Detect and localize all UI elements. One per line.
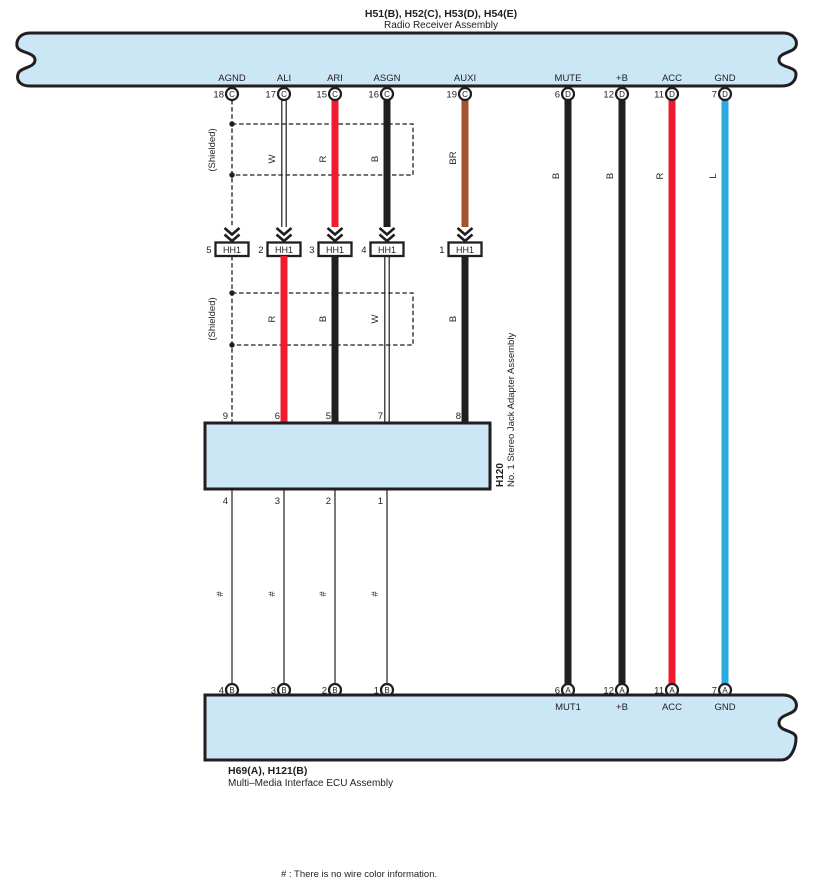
pin-number: 16 bbox=[368, 90, 379, 101]
adapter-pin-number: 6 bbox=[275, 411, 280, 422]
top-signal-agnd: AGND bbox=[218, 73, 246, 84]
hh1-connector-label: HH1 bbox=[275, 245, 293, 255]
connector-letter: C bbox=[332, 90, 338, 99]
pin-number: 18 bbox=[213, 90, 224, 101]
top-signal-mute: MUTE bbox=[555, 73, 582, 84]
top-signal-gnd: GND bbox=[714, 73, 735, 84]
wire-color-label-r: R bbox=[655, 172, 666, 179]
stereo-jack-adapter-box bbox=[205, 423, 490, 489]
mmi-ecu-band bbox=[205, 695, 796, 760]
no-color-hash: # bbox=[267, 591, 278, 597]
hh1-pin-number: 1 bbox=[439, 245, 444, 256]
hh1-connector-label: HH1 bbox=[223, 245, 241, 255]
top-signal-ari: ARI bbox=[327, 73, 343, 84]
top-pin-connectors: C 18 C 17 C 15 C 16 C 19 D 6 D 12 D 11 D… bbox=[213, 88, 731, 101]
wire-color-label-b: B bbox=[551, 173, 562, 179]
bottom-signal-mut1: MUT1 bbox=[555, 702, 581, 713]
bottom-component-codes: H69(A), H121(B) bbox=[228, 765, 307, 777]
adapter-pin-number: 3 bbox=[275, 496, 280, 507]
pin-number: 15 bbox=[316, 90, 327, 101]
top-component-codes: H51(B), H52(C), H53(D), H54(E) bbox=[365, 8, 517, 20]
wire-color-label-b: B bbox=[318, 316, 329, 322]
splice-arrow bbox=[225, 228, 473, 241]
pin-number: 7 bbox=[712, 90, 717, 101]
hh1-connector-label: HH1 bbox=[456, 245, 474, 255]
adapter-pin-number: 4 bbox=[223, 496, 228, 507]
no-color-hash: # bbox=[370, 591, 381, 597]
no-color-hash: # bbox=[318, 591, 329, 597]
hh1-pin-number: 3 bbox=[309, 245, 314, 256]
bottom-component-name: Multi–Media Interface ECU Assembly bbox=[228, 778, 393, 789]
top-signal-ali: ALI bbox=[277, 73, 291, 84]
adapter-pin-number: 5 bbox=[326, 411, 331, 422]
adapter-pin-number: 8 bbox=[456, 411, 461, 422]
pin-number: 12 bbox=[603, 90, 614, 101]
adapter-name: No. 1 Stereo Jack Adapter Assembly bbox=[506, 333, 517, 487]
hh1-connector-label: HH1 bbox=[326, 245, 344, 255]
connector-letter: C bbox=[229, 90, 235, 99]
pin-number: 19 bbox=[446, 90, 457, 101]
connector-letter: C bbox=[281, 90, 287, 99]
wire-color-label-l: L bbox=[708, 173, 719, 178]
top-component-name: Radio Receiver Assembly bbox=[384, 20, 498, 31]
adapter-pin-number: 2 bbox=[326, 496, 331, 507]
top-signal-auxi: AUXI bbox=[454, 73, 476, 84]
adapter-pin-number: 1 bbox=[378, 496, 383, 507]
bottom-signal-gnd: GND bbox=[714, 702, 735, 713]
hh1-pin-number: 2 bbox=[258, 245, 263, 256]
wire-color-label-br: BR bbox=[448, 151, 459, 164]
wire-color-label-b: B bbox=[370, 156, 381, 162]
wiring-diagram-page: H51(B), H52(C), H53(D), H54(E) Radio Rec… bbox=[0, 0, 813, 891]
wire-color-label-w: W bbox=[370, 314, 381, 323]
connector-letter: C bbox=[462, 90, 468, 99]
connector-letter: D bbox=[565, 90, 571, 99]
pin-number: 6 bbox=[555, 90, 560, 101]
adapter-pin-number: 7 bbox=[378, 411, 383, 422]
hh1-pin-number: 4 bbox=[361, 245, 366, 256]
wire-color-label-b: B bbox=[605, 173, 616, 179]
adapter-pin-number: 9 bbox=[223, 411, 228, 422]
top-signal-acc: ACC bbox=[662, 73, 682, 84]
connector-letter: D bbox=[669, 90, 675, 99]
connector-letter: D bbox=[722, 90, 728, 99]
hh1-connector-label: HH1 bbox=[378, 245, 396, 255]
top-signal-asgn: ASGN bbox=[374, 73, 401, 84]
hh1-pin-number: 5 bbox=[206, 245, 211, 256]
no-color-hash: # bbox=[215, 591, 226, 597]
wire-color-label-r: R bbox=[267, 315, 278, 322]
shield-label-lower: (Shielded) bbox=[207, 297, 218, 340]
wire-color-label-b: B bbox=[448, 316, 459, 322]
connector-letter: C bbox=[384, 90, 390, 99]
no-color-note: # : There is no wire color information. bbox=[281, 869, 437, 880]
adapter-code: H120 bbox=[495, 463, 506, 487]
wire-color-label-r: R bbox=[318, 155, 329, 162]
connector-letter: D bbox=[619, 90, 625, 99]
top-signal-plusb: +B bbox=[616, 73, 628, 84]
bottom-signal-acc: ACC bbox=[662, 702, 682, 713]
bottom-signal-plusb: +B bbox=[616, 702, 628, 713]
wiring-diagram: H51(B), H52(C), H53(D), H54(E) Radio Rec… bbox=[0, 0, 813, 891]
pin-number: 17 bbox=[265, 90, 276, 101]
wire-color-label-w: W bbox=[267, 154, 278, 163]
shield-label-upper: (Shielded) bbox=[207, 128, 218, 171]
pin-number: 11 bbox=[654, 90, 664, 101]
